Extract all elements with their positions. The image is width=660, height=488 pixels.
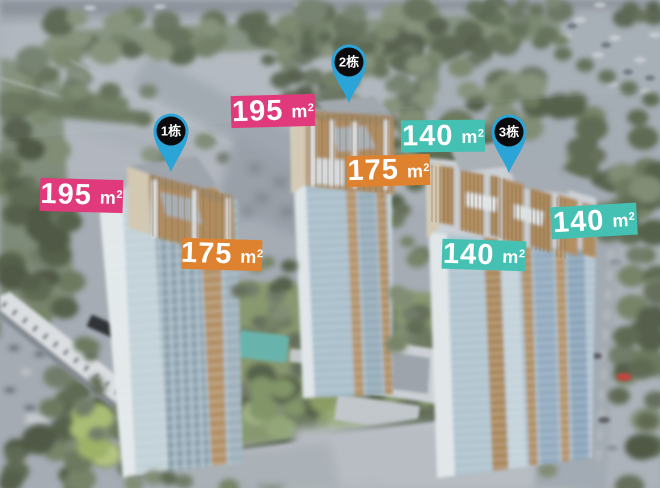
- svg-text:1栋: 1栋: [161, 124, 181, 139]
- svg-text:3栋: 3栋: [499, 125, 519, 140]
- svg-text:2栋: 2栋: [339, 55, 359, 70]
